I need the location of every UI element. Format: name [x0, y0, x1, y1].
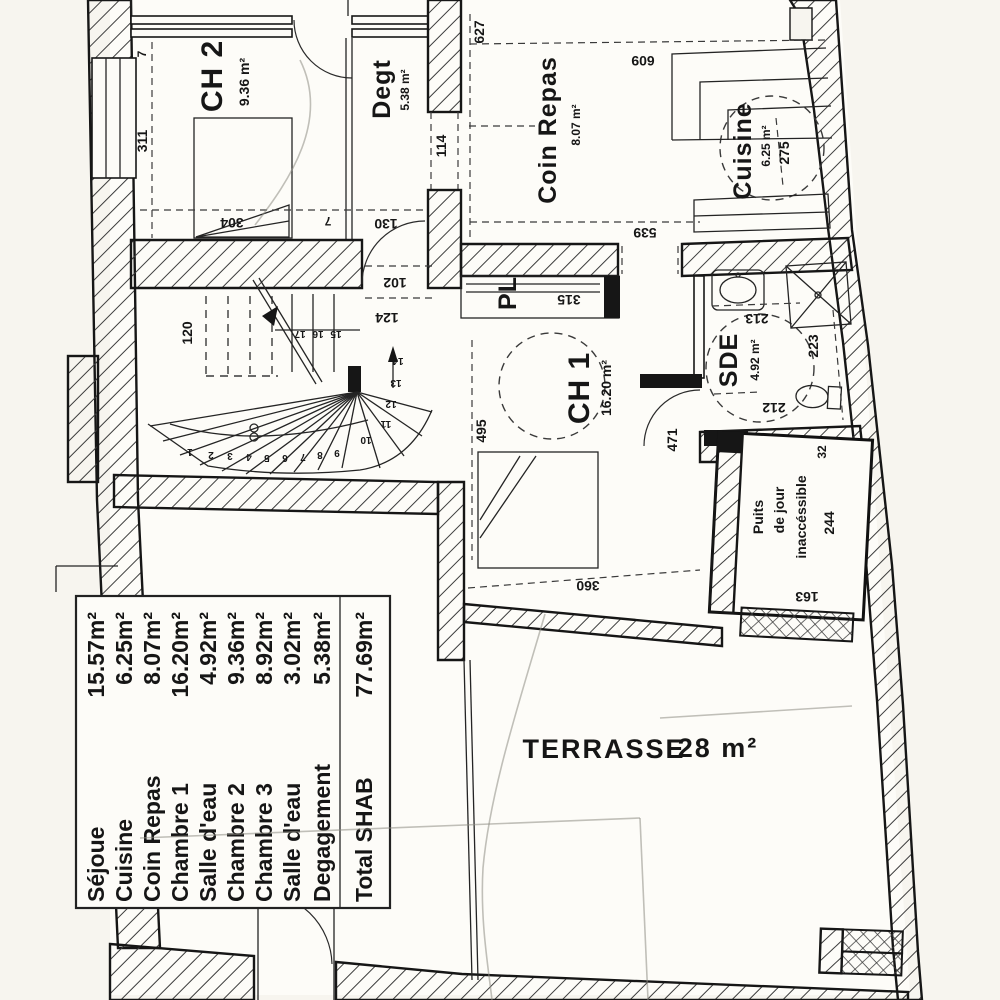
- window-left: [92, 58, 136, 178]
- svg-text:4.92m²: 4.92m²: [195, 612, 221, 685]
- svg-text:Coin Repas: Coin Repas: [139, 775, 165, 902]
- svg-text:11: 11: [380, 418, 391, 429]
- room-cuisine-area: 6.25 m²: [759, 125, 773, 166]
- svg-text:14: 14: [392, 355, 404, 366]
- svg-text:6: 6: [282, 452, 288, 463]
- wall-top-band-d: [352, 29, 428, 37]
- wall-return-bottom-right: [819, 929, 902, 976]
- wall-ch1-sde-bar: [640, 374, 702, 388]
- svg-text:2: 2: [208, 449, 214, 460]
- dim-223: 223: [805, 334, 821, 358]
- dim-102: 102: [383, 275, 407, 291]
- dim-315: 315: [557, 292, 581, 308]
- wall-coinrepas-bottom-r: [682, 238, 852, 276]
- wall-central-top: [428, 0, 461, 112]
- wall-top-band-b: [131, 29, 292, 37]
- wall-right-notch: [790, 8, 812, 40]
- svg-text:16.20m²: 16.20m²: [167, 612, 193, 698]
- room-degt-area: 5.38 m²: [398, 69, 412, 110]
- room-ch2-area: 9.36 m²: [236, 58, 252, 107]
- svg-text:8: 8: [317, 449, 323, 460]
- svg-text:Salle d'eau: Salle d'eau: [279, 783, 305, 902]
- dim-360: 360: [576, 578, 600, 594]
- dim-163: 163: [795, 589, 819, 605]
- dim-7-mid: 7: [324, 214, 331, 228]
- room-sde-area: 4.92 m²: [748, 339, 762, 380]
- svg-text:4: 4: [246, 451, 252, 462]
- dim-609: 609: [631, 53, 655, 69]
- wall-ch1-sde: [694, 276, 704, 378]
- svg-text:17: 17: [294, 328, 306, 339]
- light-well-label-2: de jour: [771, 486, 787, 533]
- svg-text:8.92m²: 8.92m²: [251, 612, 277, 685]
- light-well-label-3: inaccéssible: [793, 475, 809, 558]
- room-ch1-label: CH 1: [563, 352, 596, 424]
- room-terrasse-label: TERRASSE: [522, 734, 685, 764]
- wall-terrasse-left-band: [438, 482, 464, 660]
- wall-top-band-a: [131, 16, 292, 24]
- dim-627: 627: [471, 20, 487, 44]
- room-terrasse-area: 28 m²: [678, 733, 759, 763]
- room-sde-label: SDE: [715, 333, 743, 387]
- room-degt-label: Degt: [368, 59, 396, 119]
- svg-text:12: 12: [385, 398, 397, 409]
- svg-text:15.57m²: 15.57m²: [83, 612, 109, 698]
- dim-304: 304: [220, 215, 244, 231]
- svg-text:Chambre 1: Chambre 1: [167, 783, 193, 902]
- svg-text:9: 9: [334, 447, 340, 458]
- svg-text:Chambre 2: Chambre 2: [223, 783, 249, 902]
- svg-text:5: 5: [264, 452, 270, 463]
- svg-text:7: 7: [300, 451, 306, 462]
- dim-130: 130: [374, 216, 398, 232]
- dim-7-top: 7: [135, 50, 149, 57]
- svg-text:15: 15: [330, 328, 342, 339]
- room-ch1-area: 16.20 m²: [598, 360, 614, 416]
- light-well-corner-block: [718, 432, 743, 453]
- dim-213: 213: [745, 311, 769, 327]
- svg-text:Cuisine: Cuisine: [111, 819, 137, 902]
- svg-text:77.69m²: 77.69m²: [351, 612, 377, 698]
- dim-32: 32: [815, 445, 829, 459]
- svg-text:10: 10: [360, 434, 372, 445]
- room-cuisine-label: Cuisine: [729, 102, 757, 199]
- light-well: [708, 432, 872, 642]
- room-coinrepas-area: 8.07 m²: [569, 104, 583, 145]
- floorplan-drawing: Puits de jour inaccéssible: [0, 0, 1000, 1000]
- svg-text:3: 3: [227, 450, 233, 461]
- dim-539: 539: [633, 225, 657, 241]
- svg-text:3.02m²: 3.02m²: [279, 612, 305, 685]
- closet-pl-label: PL: [494, 276, 522, 310]
- svg-text:5.38m²: 5.38m²: [309, 612, 335, 685]
- dim-244: 244: [821, 511, 837, 535]
- closet-pl-cap: [604, 276, 620, 318]
- dim-114: 114: [433, 134, 449, 157]
- dim-275: 275: [776, 141, 792, 165]
- wall-stairs-bottom: [114, 475, 438, 514]
- svg-text:Total SHAB: Total SHAB: [351, 777, 377, 902]
- dim-495: 495: [473, 419, 489, 443]
- svg-text:6.25m²: 6.25m²: [111, 612, 137, 685]
- svg-text:Salle d'eau: Salle d'eau: [195, 783, 221, 902]
- svg-text:16: 16: [312, 328, 324, 339]
- svg-text:13: 13: [390, 377, 402, 388]
- stair-newel: [348, 366, 361, 392]
- room-coinrepas-label: Coin Repas: [534, 56, 562, 204]
- legend-values: 15.57m² 6.25m² 8.07m² 16.20m² 4.92m² 9.3…: [83, 612, 377, 698]
- wall-ch2-bottom: [131, 240, 362, 288]
- legend-table: Séjoue Cuisine Coin Repas Chambre 1 Sall…: [76, 596, 390, 908]
- svg-text:Séjoue: Séjoue: [83, 827, 109, 902]
- room-ch2-label: CH 2: [196, 40, 229, 112]
- wall-left-jog: [68, 356, 98, 482]
- dim-124: 124: [375, 310, 399, 326]
- svg-text:9.36m²: 9.36m²: [223, 612, 249, 685]
- svg-text:1: 1: [187, 446, 193, 457]
- dim-471: 471: [664, 428, 680, 452]
- svg-text:Degagement: Degagement: [309, 764, 335, 902]
- svg-text:Chambre 3: Chambre 3: [251, 783, 277, 902]
- svg-text:8.07m²: 8.07m²: [139, 612, 165, 685]
- floorplan-page: Puits de jour inaccéssible: [0, 0, 1000, 1000]
- dim-120: 120: [179, 321, 195, 345]
- light-well-label-1: Puits: [750, 500, 766, 534]
- light-well-sill: [740, 608, 853, 642]
- wall-top-band-c: [352, 16, 428, 24]
- dim-212: 212: [762, 400, 786, 416]
- dim-311: 311: [134, 129, 150, 152]
- wall-central-mid: [428, 190, 461, 288]
- wall-coinrepas-bottom-l: [461, 244, 618, 276]
